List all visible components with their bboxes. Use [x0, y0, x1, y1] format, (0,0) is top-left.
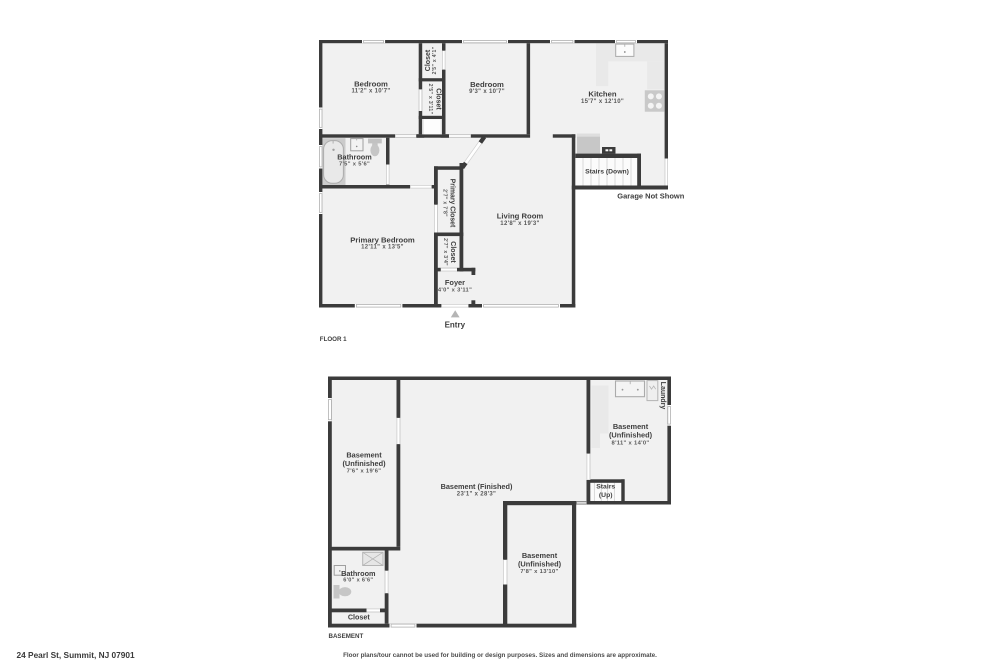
svg-text:Garage Not Shown: Garage Not Shown: [617, 192, 685, 201]
svg-text:2'5" x 4'1": 2'5" x 4'1": [432, 46, 438, 74]
svg-text:4'0" x 3'11": 4'0" x 3'11": [438, 287, 472, 293]
svg-text:Bedroom: Bedroom: [470, 80, 504, 89]
svg-text:Living Room: Living Room: [497, 212, 544, 221]
svg-text:7'6" x 19'6": 7'6" x 19'6": [347, 469, 382, 475]
svg-text:Bathroom: Bathroom: [341, 569, 376, 578]
svg-text:Stairs: Stairs: [596, 484, 615, 491]
svg-text:7'5" x 5'6": 7'5" x 5'6": [339, 162, 370, 168]
svg-text:Primary Closet: Primary Closet: [448, 179, 455, 228]
svg-text:8'11" x 14'0": 8'11" x 14'0": [612, 441, 650, 447]
svg-text:2'5" x 3'11": 2'5" x 3'11": [427, 84, 433, 115]
svg-text:Primary Bedroom: Primary Bedroom: [350, 235, 415, 244]
svg-text:(Unfinished): (Unfinished): [518, 559, 562, 568]
svg-text:15'7" x 12'10": 15'7" x 12'10": [581, 99, 624, 105]
svg-text:9'3" x 10'7": 9'3" x 10'7": [469, 89, 505, 95]
svg-text:11'2" x 10'7": 11'2" x 10'7": [351, 89, 390, 95]
svg-text:Bedroom: Bedroom: [354, 80, 388, 89]
svg-text:24 Pearl St, Summit, NJ 07901: 24 Pearl St, Summit, NJ 07901: [17, 650, 135, 660]
svg-text:Basement: Basement: [613, 422, 649, 431]
svg-text:Basement (Finished): Basement (Finished): [441, 482, 513, 491]
svg-text:Stairs (Down): Stairs (Down): [585, 168, 629, 175]
svg-text:2'7" x 3'4": 2'7" x 3'4": [442, 238, 448, 266]
svg-text:Bathroom: Bathroom: [337, 152, 372, 161]
svg-text:23'1" x 28'3": 23'1" x 28'3": [457, 492, 496, 498]
svg-text:FLOOR 1: FLOOR 1: [320, 336, 347, 343]
svg-text:Kitchen: Kitchen: [588, 90, 616, 99]
svg-text:Foyer: Foyer: [445, 278, 465, 287]
svg-text:2'7" x 7'8": 2'7" x 7'8": [441, 189, 447, 217]
svg-text:Closet: Closet: [348, 613, 371, 622]
svg-text:12'8" x 19'3": 12'8" x 19'3": [500, 221, 539, 227]
svg-text:Entry: Entry: [445, 321, 466, 330]
svg-text:BASEMENT: BASEMENT: [329, 633, 364, 640]
svg-text:6'0" x 6'6": 6'0" x 6'6": [343, 578, 373, 584]
svg-text:Closet: Closet: [449, 241, 456, 263]
svg-text:Floor plans/tour cannot be use: Floor plans/tour cannot be used for buil…: [343, 652, 657, 659]
svg-text:12'11" x 13'5": 12'11" x 13'5": [361, 244, 404, 250]
svg-text:7'8" x 13'10": 7'8" x 13'10": [520, 569, 558, 575]
svg-text:(Unfinished): (Unfinished): [342, 459, 386, 468]
svg-text:(Up): (Up): [599, 492, 613, 499]
svg-text:(Unfinished): (Unfinished): [609, 431, 653, 440]
svg-text:Laundry: Laundry: [659, 382, 666, 410]
svg-text:Closet: Closet: [434, 88, 441, 110]
